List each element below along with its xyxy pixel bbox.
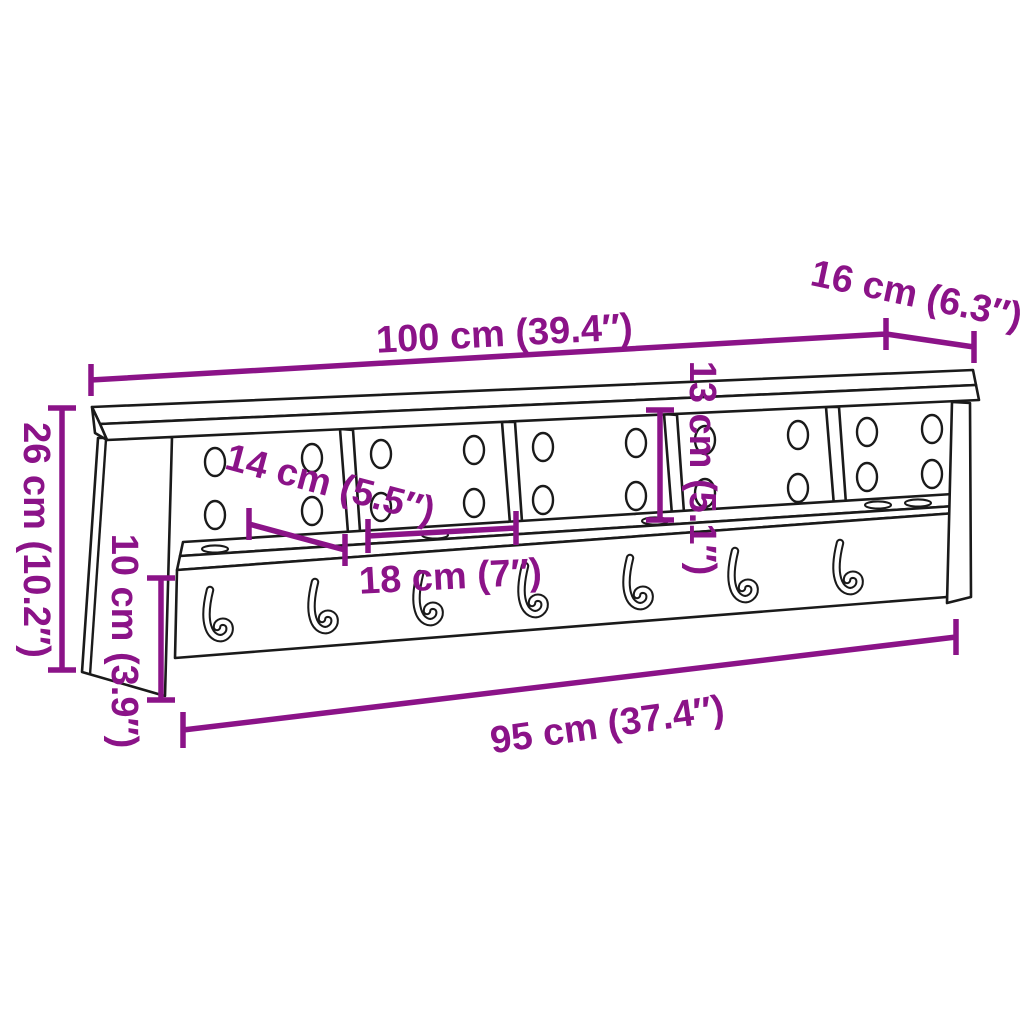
overall-height-label: 26 cm (10.2″) — [15, 422, 57, 658]
compartment-depth-label: 14 cm (5.5″) — [221, 436, 439, 532]
coat-rack-drawing — [82, 370, 979, 696]
right-side-panel — [947, 402, 971, 603]
divider — [502, 422, 523, 536]
top-board — [92, 370, 979, 440]
top-depth-label: 16 cm (6.3″) — [807, 252, 1024, 338]
compartment-height-label: 13 cm (5.1″) — [681, 361, 723, 576]
coat-rack-dimension-drawing: 100 cm (39.4″) 16 cm (6.3″) 26 cm (10.2″… — [0, 0, 1024, 1024]
dimension-top-depth: 16 cm (6.3″) — [807, 252, 1024, 363]
rail-height-label: 10 cm (3.9″) — [103, 534, 145, 749]
product-dimension-diagram: 100 cm (39.4″) 16 cm (6.3″) 26 cm (10.2″… — [0, 0, 1024, 1024]
dimension-overall-height: 26 cm (10.2″) — [15, 408, 76, 670]
inner-width-label: 95 cm (37.4″) — [488, 688, 727, 762]
